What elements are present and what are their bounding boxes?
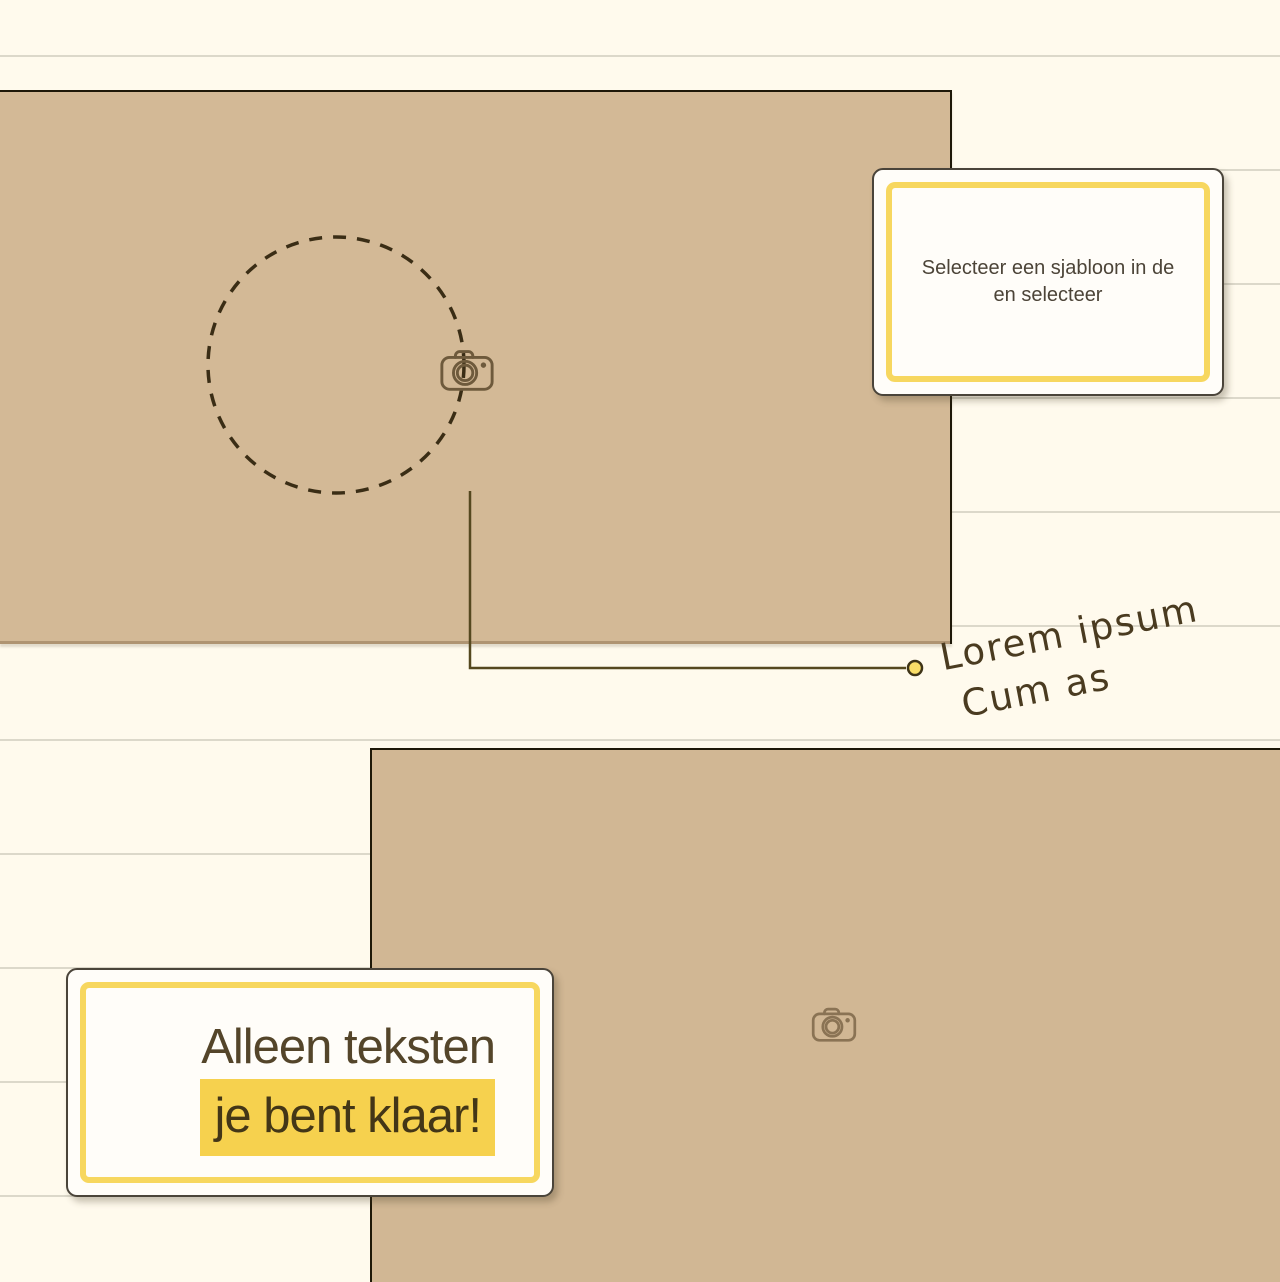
template-hint-text: Selecteer een sjabloon in de en selectee…	[874, 170, 1222, 394]
template-hint-card[interactable]: Selecteer een sjabloon in de en selectee…	[872, 168, 1224, 396]
template-hint-line-1: Selecteer een sjabloon in de	[922, 255, 1174, 282]
image-placeholder-top[interactable]	[0, 90, 952, 644]
done-hint-card[interactable]: Alleen teksten je bent klaar!	[66, 968, 554, 1197]
done-hint-line-2-highlighted: je bent klaar!	[200, 1079, 495, 1156]
done-hint-text: Alleen teksten je bent klaar!	[200, 1018, 495, 1156]
camera-icon	[810, 1003, 858, 1049]
design-canvas: Lorem ipsum Cum as Selecteer een sjabloo…	[0, 0, 1280, 1280]
camera-icon	[438, 344, 496, 399]
dashed-circle-marker[interactable]	[204, 233, 468, 497]
template-hint-line-2: en selecteer	[994, 282, 1103, 309]
done-hint-line-1: Alleen teksten	[200, 1018, 495, 1076]
